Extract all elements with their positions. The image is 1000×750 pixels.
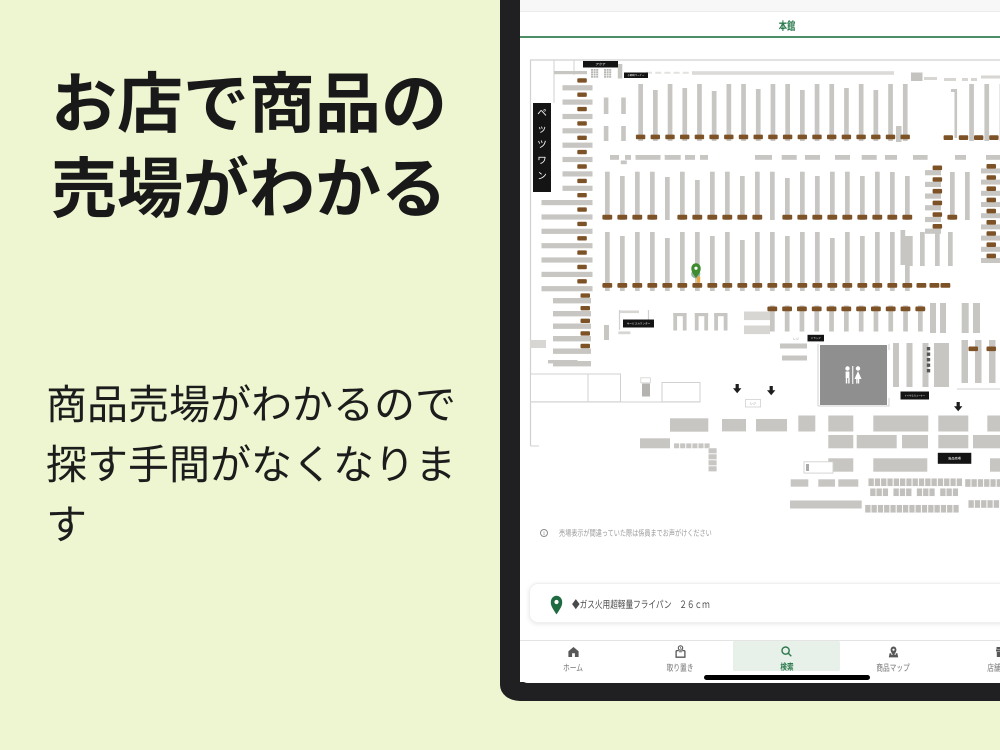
svg-text:ペ: ペ <box>537 105 547 119</box>
svg-text:サービスカウンター: サービスカウンター <box>627 321 651 325</box>
svg-text:ワ: ワ <box>537 152 547 166</box>
svg-text:ン: ン <box>537 168 547 182</box>
svg-text:アクア: アクア <box>595 62 606 67</box>
svg-text:ツ: ツ <box>537 137 547 151</box>
svg-text:食品売場: 食品売場 <box>948 456 962 461</box>
svg-text:小動物コーナー: 小動物コーナー <box>628 73 645 77</box>
svg-text:レジ: レジ <box>793 337 799 341</box>
svg-text:レジ: レジ <box>750 402 756 406</box>
svg-text:ドラッグ: ドラッグ <box>811 336 821 340</box>
svg-text:ッ: ッ <box>537 121 547 135</box>
svg-text:トイザらスコーナー: トイザらスコーナー <box>904 393 925 397</box>
